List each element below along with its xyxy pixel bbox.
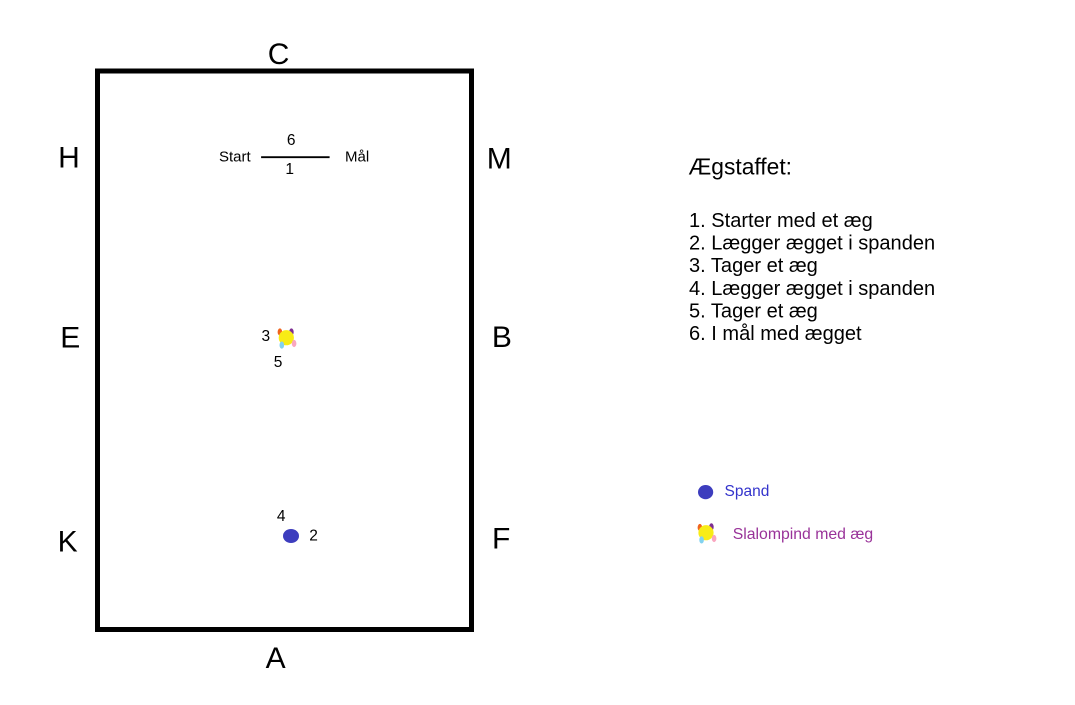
svg-text:5: 5: [274, 354, 283, 371]
svg-text:B: B: [492, 321, 512, 354]
svg-text:6. I mål med ægget: 6. I mål med ægget: [689, 323, 862, 345]
svg-text:H: H: [58, 141, 80, 174]
svg-text:2: 2: [309, 528, 318, 545]
svg-text:E: E: [60, 321, 80, 354]
svg-text:5. Tager et æg: 5. Tager et æg: [689, 300, 818, 322]
svg-text:1. Starter med et æg: 1. Starter med et æg: [689, 210, 873, 232]
svg-text:Ægstaffet:: Ægstaffet:: [689, 153, 793, 179]
svg-text:Start: Start: [219, 148, 252, 165]
svg-text:F: F: [492, 523, 510, 556]
svg-text:1: 1: [285, 161, 294, 178]
svg-text:3. Tager et æg: 3. Tager et æg: [689, 255, 818, 277]
svg-text:M: M: [487, 143, 512, 176]
svg-text:C: C: [268, 38, 290, 71]
svg-text:4: 4: [277, 508, 286, 525]
svg-text:A: A: [266, 642, 286, 675]
svg-text:K: K: [58, 526, 78, 559]
svg-text:Spand: Spand: [725, 483, 770, 500]
svg-text:6: 6: [287, 132, 296, 149]
svg-text:Slalompind med æg: Slalompind med æg: [733, 526, 874, 543]
svg-text:4. Lægger ægget i spanden: 4. Lægger ægget i spanden: [689, 278, 935, 300]
svg-text:2. Lægger ægget i spanden: 2. Lægger ægget i spanden: [689, 233, 935, 255]
svg-text:Mål: Mål: [345, 148, 369, 165]
svg-text:3: 3: [261, 328, 270, 345]
